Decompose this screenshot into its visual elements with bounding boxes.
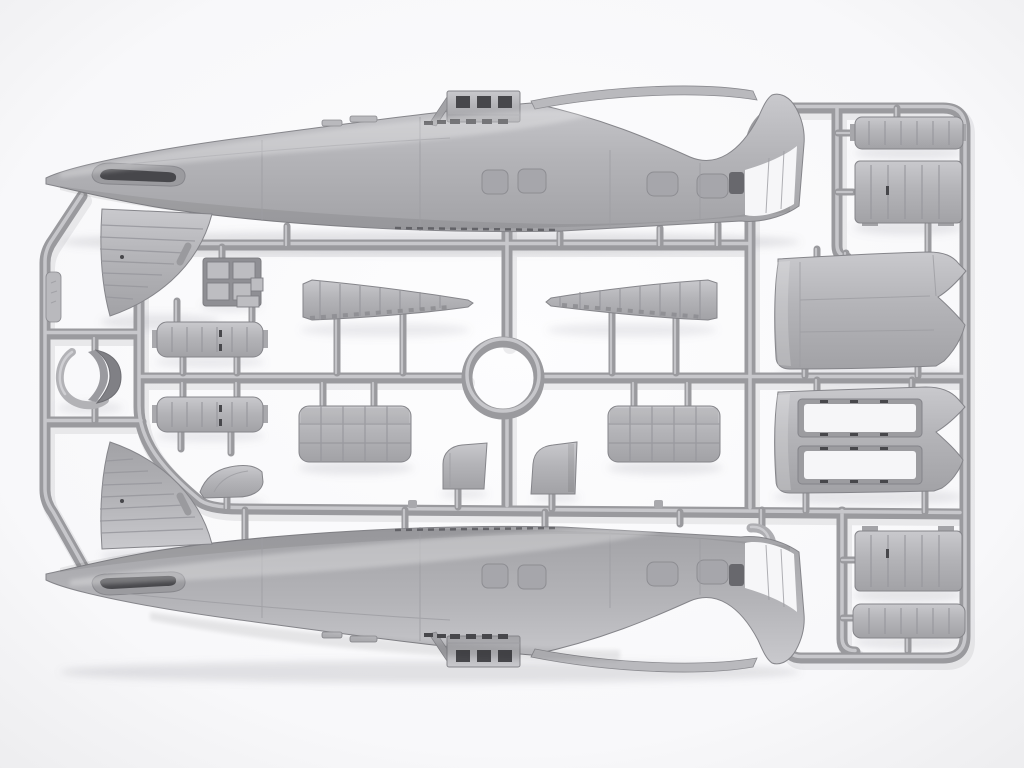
sprue-photo: Gray injection-molded model aircraft spr… (0, 0, 1024, 768)
small-box (237, 296, 259, 307)
radiator-grid-left: Radiator grille panel, left (299, 406, 411, 462)
block-slot (886, 186, 889, 195)
ribbed-block-c: Ribbed hatch part C (855, 526, 962, 591)
panel-body (775, 252, 966, 369)
small-box (207, 283, 229, 300)
ribbed-block-a: Ribbed hatch part A (850, 117, 966, 149)
ribbed-block-b: Ribbed hatch part B (855, 161, 962, 226)
radiator-top-band (610, 408, 718, 423)
brand-tag: Molded tag on frame rail (46, 272, 61, 322)
door-slot (219, 344, 222, 351)
block-slot (886, 549, 889, 558)
block-body (853, 604, 965, 638)
wing-panel-solid: Wing center-section panel (775, 252, 966, 369)
small-box (251, 278, 263, 291)
small-box (233, 262, 255, 279)
sprue-photo-canvas: Gray injection-molded model aircraft spr… (0, 0, 1024, 768)
ribbed-block-d: Ribbed hatch part D (853, 604, 965, 638)
block-body (855, 117, 963, 149)
door-slot (219, 419, 222, 426)
wedge-edge-shade (568, 444, 574, 492)
wedge-left: Small fairing wedge, left (443, 443, 487, 489)
runner-nub (654, 500, 663, 508)
tag-body (46, 272, 61, 322)
equipment-box-cluster: Equipment box cluster (203, 258, 263, 307)
wing-panel-openings: Wing panel with bay openings (775, 387, 965, 493)
door-slot (219, 330, 222, 337)
runner-nub (408, 500, 417, 508)
opening-cutout (804, 451, 916, 479)
small-box (207, 262, 229, 279)
bay-door-upper: Ribbed bay door, upper (152, 322, 268, 357)
radiator-grid-right: Radiator grille panel, right (608, 406, 720, 462)
opening-cutout (804, 404, 916, 432)
door-slot (219, 405, 222, 412)
radiator-top-band (301, 408, 409, 423)
bay-door-lower: Ribbed bay door, lower (152, 397, 268, 432)
